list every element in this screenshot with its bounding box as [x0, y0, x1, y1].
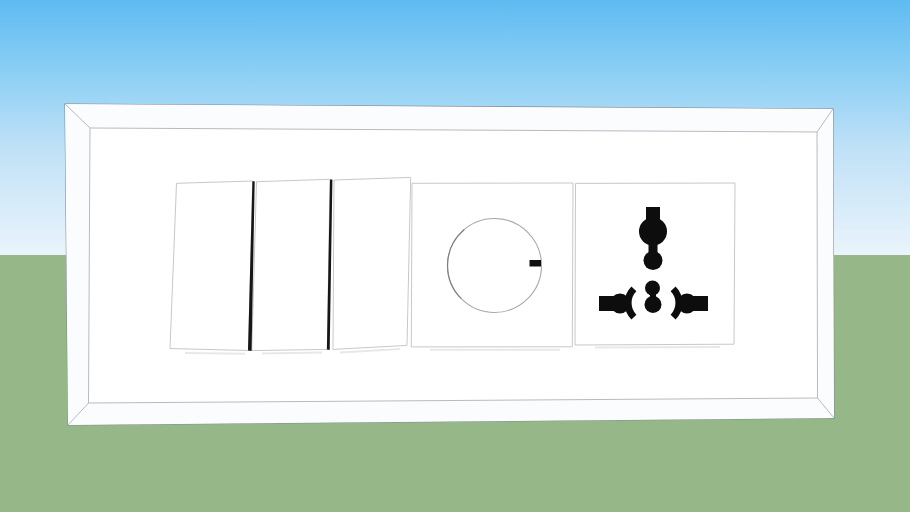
rocker-switch-1[interactable] [170, 181, 253, 351]
earth-small-round-hole [644, 251, 663, 270]
earth-large-round-hole [639, 218, 667, 246]
rocker-switch-3[interactable] [333, 177, 411, 349]
center-round-hole-bottom [645, 296, 662, 313]
switch-bank[interactable] [170, 177, 411, 351]
model-viewport[interactable] [0, 0, 910, 512]
dimmer-indicator-mark [530, 260, 542, 267]
model-canvas[interactable] [0, 0, 910, 512]
right-flat-slot [684, 296, 708, 311]
dimmer-module[interactable] [411, 183, 573, 347]
rocker-switch-2[interactable] [252, 179, 330, 350]
socket-module[interactable] [575, 183, 735, 345]
